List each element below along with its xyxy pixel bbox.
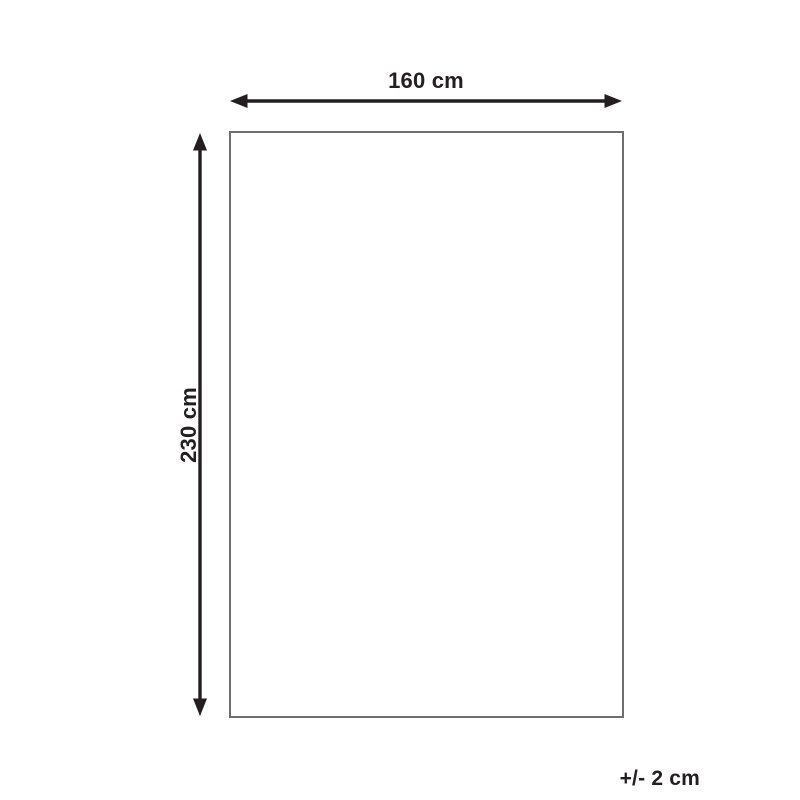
height-dimension-label: 230 cm [176, 387, 201, 463]
width-dimension-label: 160 cm [388, 68, 464, 93]
diagram-canvas: 160 cm 230 cm +/- 2 cm [0, 0, 800, 800]
width-arrowhead-right [605, 94, 623, 108]
height-arrowhead-top [193, 133, 207, 151]
dimension-diagram: 160 cm 230 cm +/- 2 cm [0, 0, 800, 800]
product-outline-rect [230, 132, 623, 717]
height-arrowhead-bottom [193, 699, 207, 717]
width-arrowhead-left [230, 94, 248, 108]
tolerance-label: +/- 2 cm [620, 767, 700, 790]
width-arrow-icon [230, 94, 622, 108]
